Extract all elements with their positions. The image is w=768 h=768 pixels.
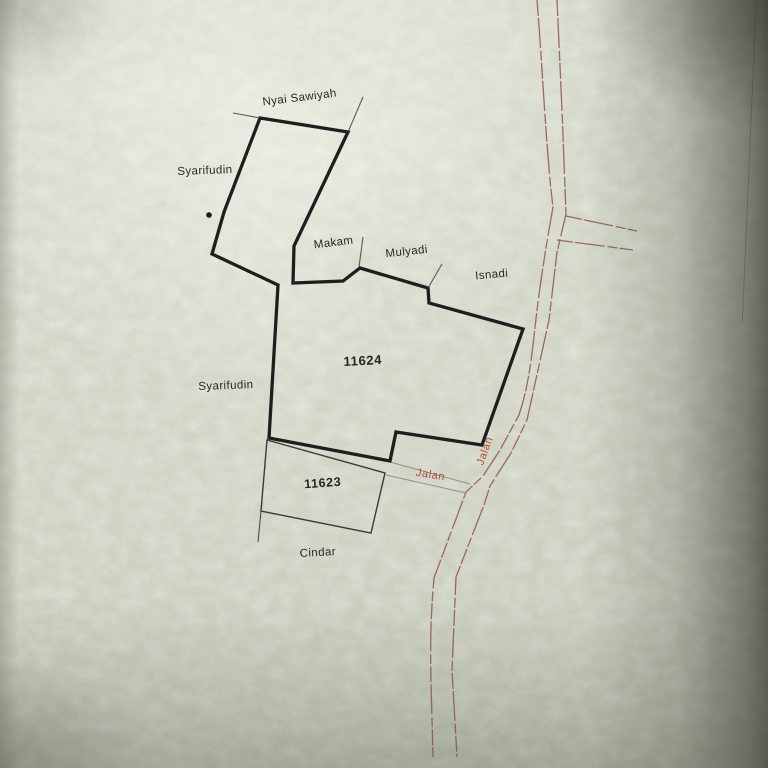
paper-fleck-texture: [0, 0, 768, 768]
survey-point-dot: [206, 212, 212, 218]
label-parcel-11624: 11624: [343, 352, 382, 369]
label-parcel-11623: 11623: [304, 475, 342, 492]
label-cindar: Cindar: [299, 546, 336, 560]
label-syarifudin-west: Syarifudin: [198, 379, 254, 393]
label-syarifudin-north: Syarifudin: [177, 164, 233, 178]
cadastral-sketch-map: Nyai Sawiyah Syarifudin Makam Mulyadi Is…: [0, 0, 768, 768]
scanned-paper-sheet: Nyai Sawiyah Syarifudin Makam Mulyadi Is…: [0, 0, 768, 768]
